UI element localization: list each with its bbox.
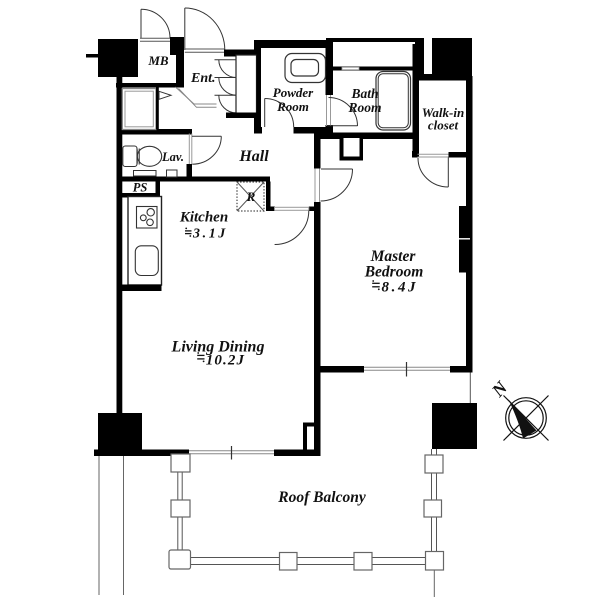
svg-text:10.2J: 10.2J — [206, 353, 245, 369]
svg-text:Roof Balcony: Roof Balcony — [277, 489, 366, 506]
svg-text:8.4J: 8.4J — [382, 280, 419, 296]
svg-text:Room: Room — [347, 100, 381, 115]
svg-text:MB: MB — [147, 53, 169, 68]
svg-text:Powder: Powder — [273, 85, 314, 100]
svg-text:Kitchen: Kitchen — [179, 210, 228, 226]
svg-text:Room: Room — [276, 99, 309, 114]
svg-text:Ent.: Ent. — [190, 71, 216, 86]
svg-text:closet: closet — [428, 118, 459, 133]
svg-text:PS: PS — [133, 181, 148, 195]
svg-text:Hall: Hall — [238, 148, 269, 165]
svg-text:3.1J: 3.1J — [192, 227, 228, 242]
svg-text:Bath: Bath — [350, 86, 378, 101]
svg-text:Master: Master — [370, 248, 417, 265]
svg-text:Lav.: Lav. — [161, 150, 184, 164]
svg-text:Bedroom: Bedroom — [364, 264, 424, 281]
svg-text:R: R — [246, 189, 256, 204]
